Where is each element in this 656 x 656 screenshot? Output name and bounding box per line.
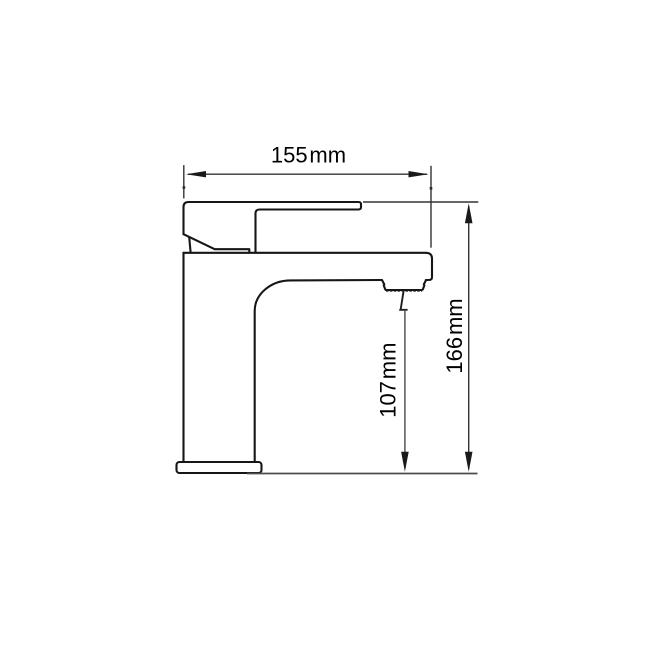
svg-text:155 mm: 155 mm — [271, 142, 346, 167]
svg-text:166 mm: 166 mm — [442, 298, 467, 373]
svg-text:107 mm: 107 mm — [376, 343, 401, 418]
